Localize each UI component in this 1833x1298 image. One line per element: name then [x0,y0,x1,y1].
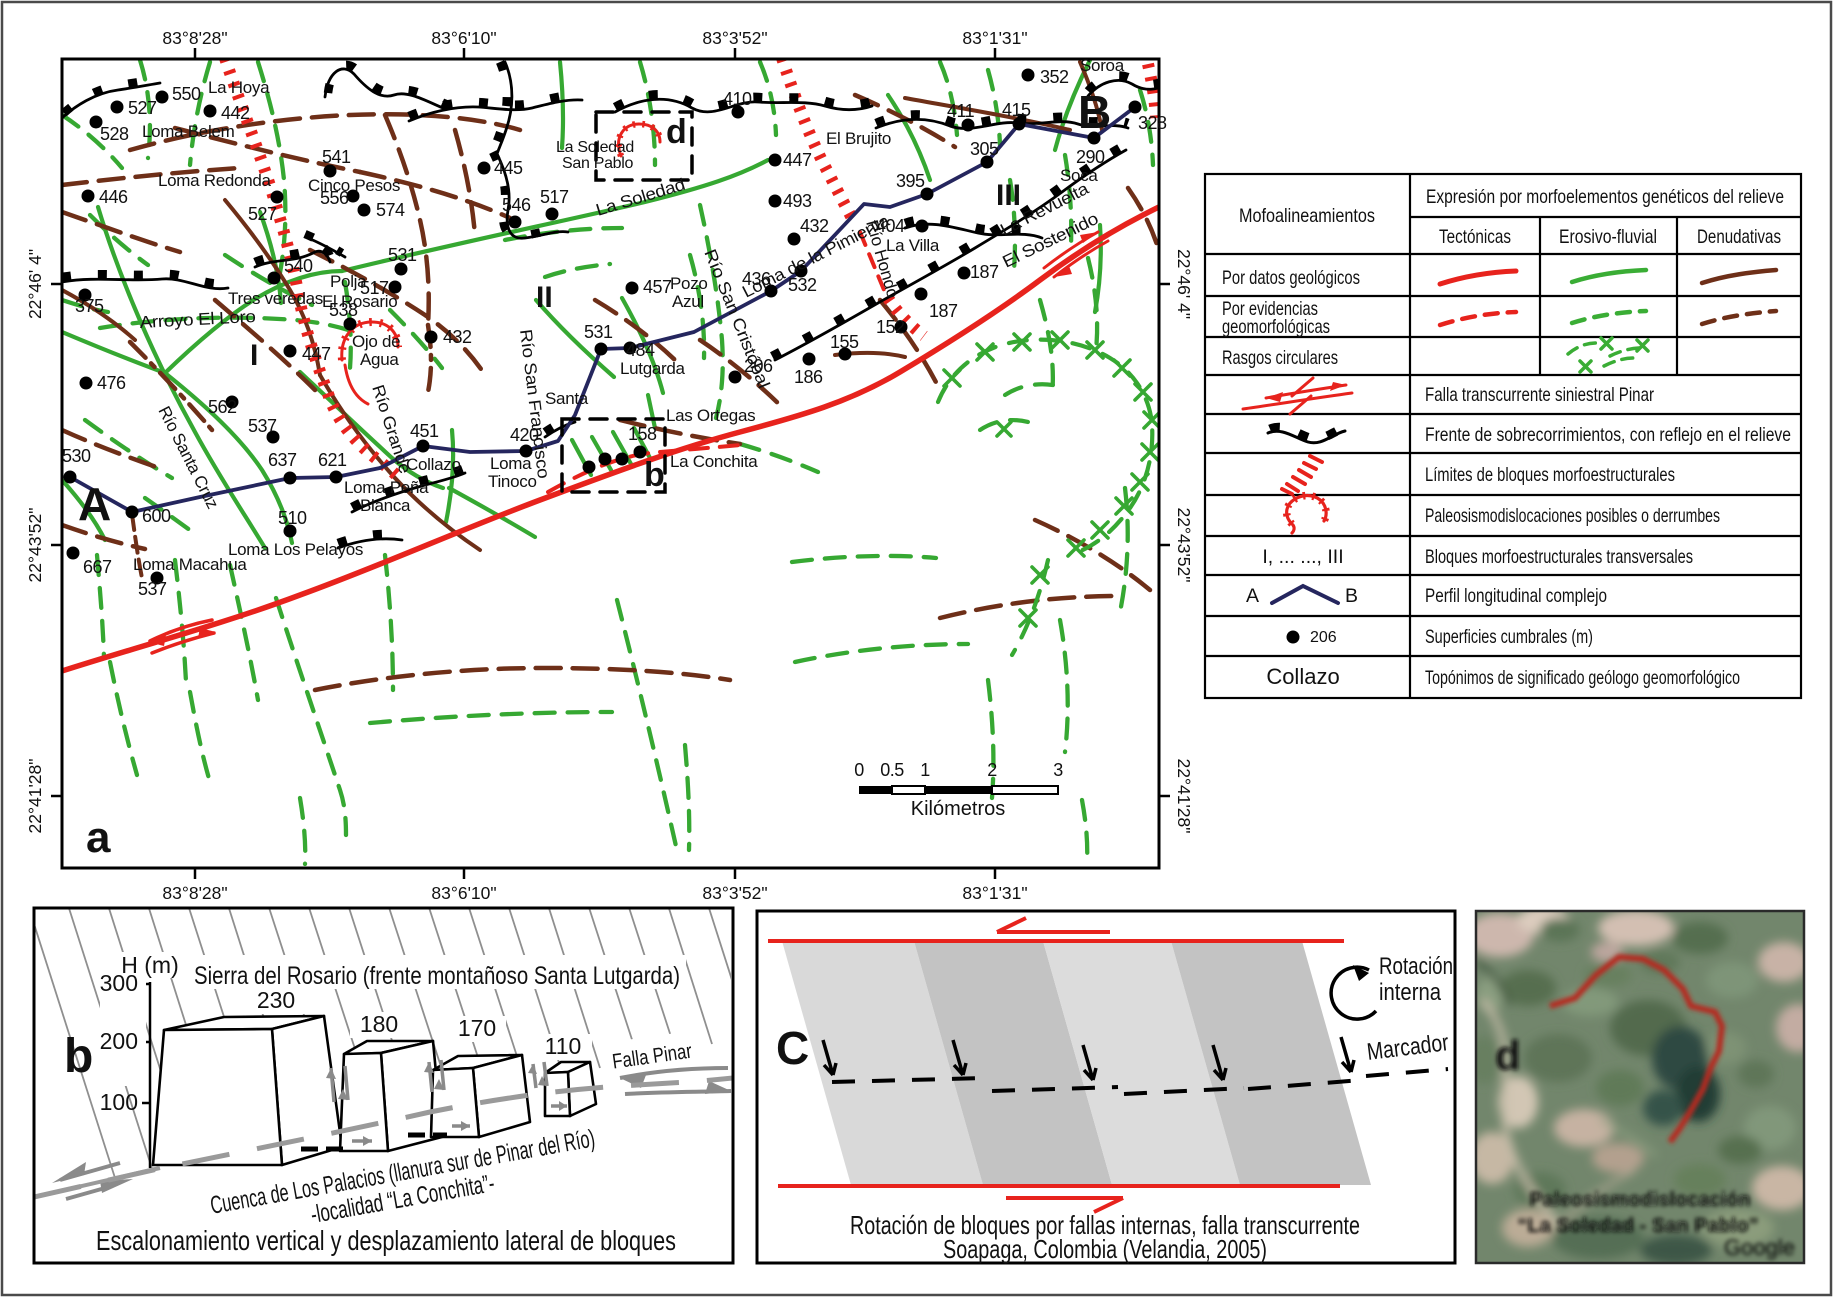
svg-text:Tres veredas: Tres veredas [228,289,323,308]
svg-text:83°3'52": 83°3'52" [702,28,767,48]
svg-text:d: d [1495,1032,1521,1079]
svg-text:El Brujito: El Brujito [826,129,891,148]
svg-text:415: 415 [1002,100,1031,120]
svg-text:Erosivo-fluvial: Erosivo-fluvial [1559,226,1657,248]
svg-text:411: 411 [947,101,975,121]
svg-text:Blanca: Blanca [360,496,411,515]
svg-text:155: 155 [830,332,859,352]
svg-text:531: 531 [388,245,417,265]
svg-text:541: 541 [322,147,351,167]
svg-text:447: 447 [783,150,812,170]
svg-text:527: 527 [128,98,157,118]
svg-text:Loma Redonda: Loma Redonda [158,171,271,190]
svg-text:A: A [1246,585,1259,607]
svg-text:447: 447 [302,344,331,364]
svg-text:Collazo: Collazo [406,455,461,474]
svg-text:Tectónicas: Tectónicas [1439,226,1511,248]
svg-text:83°8'28": 83°8'28" [162,883,227,903]
svg-text:II: II [536,281,553,314]
svg-text:Falla transcurrente siniestral: Falla transcurrente siniestral Pinar [1425,384,1654,406]
svg-text:180: 180 [360,1011,398,1037]
svg-text:Loma: Loma [490,454,532,473]
svg-text:Soapaga, Colombia (Velandia, 2: Soapaga, Colombia (Velandia, 2005) [943,1234,1267,1264]
svg-text:Perfil longitudinal complejo: Perfil longitudinal complejo [1425,585,1607,607]
svg-text:83°6'10": 83°6'10" [431,28,496,48]
svg-text:Loma Belem: Loma Belem [142,122,235,141]
svg-text:432: 432 [443,327,472,347]
svg-text:493: 493 [783,191,812,211]
svg-text:476: 476 [97,373,126,393]
svg-text:562: 562 [208,397,237,417]
svg-text:Loma Los Pelayos: Loma Los Pelayos [228,540,363,559]
svg-text:300: 300 [100,970,138,996]
svg-text:Agua: Agua [360,350,399,369]
svg-text:Arroyo El Loro: Arroyo El Loro [139,307,256,332]
svg-text:540: 540 [284,256,313,276]
svg-text:Google: Google [1724,1235,1795,1260]
svg-text:528: 528 [100,124,129,144]
svg-text:83°6'10": 83°6'10" [431,883,496,903]
svg-text:621: 621 [318,450,347,470]
svg-text:22°41'28": 22°41'28" [1174,759,1194,834]
svg-text:San Pablo: San Pablo [562,155,634,172]
svg-text:3: 3 [1053,760,1063,780]
svg-text:152: 152 [876,317,905,337]
svg-text:Lutgarda: Lutgarda [620,359,686,378]
svg-text:Cinco Pesos: Cinco Pesos [308,176,400,195]
svg-text:457: 457 [643,277,672,297]
svg-text:La Soledad: La Soledad [556,139,634,156]
svg-text:100: 100 [100,1089,138,1115]
svg-text:Kilómetros: Kilómetros [911,798,1005,820]
svg-text:446: 446 [99,187,128,207]
svg-text:600: 600 [142,506,171,526]
svg-text:451: 451 [410,421,439,441]
svg-text:432: 432 [800,216,829,236]
svg-text:Pozo: Pozo [670,274,708,293]
svg-text:206: 206 [1310,629,1337,646]
svg-text:0: 0 [854,760,864,780]
svg-text:A: A [78,478,111,530]
svg-text:395: 395 [896,171,925,191]
svg-text:527: 527 [248,204,277,224]
svg-text:b: b [64,1030,93,1083]
svg-text:170: 170 [458,1015,496,1041]
svg-text:Frente de sobrecorrimientos, c: Frente de sobrecorrimientos, con reflejo… [1425,424,1791,446]
svg-text:Bloques morfoestructurales tra: Bloques morfoestructurales transversales [1425,546,1693,568]
svg-text:187: 187 [929,301,958,321]
svg-text:I: I [250,339,258,372]
svg-text:interna: interna [1379,979,1442,1006]
svg-text:La Villa: La Villa [886,236,940,255]
svg-text:a: a [86,813,111,862]
svg-text:Loma Peña: Loma Peña [344,478,429,497]
svg-text:22°43'52": 22°43'52" [1174,508,1194,583]
svg-text:22°46' 4": 22°46' 4" [25,249,45,319]
svg-text:0.5: 0.5 [880,760,904,780]
svg-text:484: 484 [626,340,655,360]
svg-text:Azul: Azul [672,292,704,311]
svg-text:Sierra del Rosario (frente mon: Sierra del Rosario (frente montañoso San… [194,962,680,990]
svg-text:186: 186 [794,367,823,387]
svg-text:I, ... ..., III: I, ... ..., III [1262,546,1343,568]
svg-text:Ojo de: Ojo de [352,332,400,351]
svg-text:Mofoalineamientos: Mofoalineamientos [1239,205,1375,227]
svg-text:537: 537 [138,579,167,599]
svg-text:Soroa: Soroa [1080,56,1125,75]
svg-text:Superficies cumbrales (m): Superficies cumbrales (m) [1425,626,1593,648]
svg-text:Paleosismodislocación: Paleosismodislocación [1529,1189,1750,1211]
svg-text:517: 517 [540,187,569,207]
svg-text:Por datos geológicos: Por datos geológicos [1222,267,1360,289]
svg-text:“La Soledad - San Pablo”: “La Soledad - San Pablo” [1517,1215,1758,1237]
svg-text:83°8'28": 83°8'28" [162,28,227,48]
svg-text:III: III [996,179,1021,212]
svg-text:110: 110 [545,1033,582,1059]
svg-text:510: 510 [278,508,307,528]
svg-text:La Conchita: La Conchita [670,452,758,471]
svg-text:Límites de bloques morfoestruc: Límites de bloques morfoestructurales [1425,464,1675,486]
svg-text:230: 230 [257,987,295,1013]
svg-text:Las Ortegas: Las Ortegas [666,406,755,425]
svg-text:375: 375 [75,296,104,316]
svg-text:Tinoco: Tinoco [488,472,537,491]
svg-text:Rotación: Rotación [1379,953,1453,980]
svg-text:B: B [1078,86,1111,138]
svg-text:328: 328 [1138,113,1167,133]
svg-text:Marcador: Marcador [1365,1029,1450,1066]
svg-text:Denudativas: Denudativas [1697,226,1781,248]
svg-text:B: B [1345,585,1358,607]
svg-text:geomorfológicas: geomorfológicas [1222,316,1330,338]
svg-text:442: 442 [221,103,250,123]
svg-text:2: 2 [987,760,997,780]
svg-text:200: 200 [100,1028,138,1054]
svg-text:537: 537 [248,416,277,436]
svg-text:352: 352 [1040,67,1069,87]
svg-text:22°43'52": 22°43'52" [25,508,45,583]
svg-text:b: b [644,456,665,494]
svg-text:83°1'31": 83°1'31" [962,883,1027,903]
svg-text:1: 1 [920,760,930,780]
svg-text:Santa: Santa [545,389,589,408]
svg-text:410: 410 [723,89,752,109]
svg-text:83°1'31": 83°1'31" [962,28,1027,48]
svg-text:290: 290 [1076,147,1105,167]
svg-text:22°41'28": 22°41'28" [25,759,45,834]
svg-text:d: d [666,113,687,151]
svg-text:637: 637 [268,450,297,470]
svg-text:531: 531 [584,322,613,342]
svg-text:530: 530 [62,446,91,466]
svg-text:Paleosismodislocaciones posibl: Paleosismodislocaciones posibles o derru… [1425,505,1720,527]
svg-text:305: 305 [970,139,999,159]
svg-text:158: 158 [628,424,657,444]
svg-text:La Hoya: La Hoya [208,78,270,97]
svg-text:546: 546 [502,195,531,215]
svg-text:445: 445 [494,158,523,178]
svg-text:Rasgos circulares: Rasgos circulares [1222,347,1338,369]
svg-text:187: 187 [970,262,999,282]
svg-text:667: 667 [83,557,112,577]
svg-text:La Soledad: La Soledad [594,175,688,220]
svg-text:550: 550 [172,84,201,104]
svg-text:C: C [776,1022,809,1074]
svg-text:574: 574 [376,200,405,220]
svg-text:Polja: Polja [330,272,367,291]
svg-text:Escalonamiento vertical y desp: Escalonamiento vertical y desplazamiento… [96,1225,676,1256]
svg-text:Collazo: Collazo [1266,664,1339,689]
svg-text:83°3'52": 83°3'52" [702,883,767,903]
svg-text:El Rosario: El Rosario [322,292,397,311]
svg-text:22°46' 4": 22°46' 4" [1174,249,1194,319]
svg-text:Expresión por morfoelementos g: Expresión por morfoelementos genéticos d… [1426,186,1784,208]
svg-text:Topónimos de significado geólo: Topónimos de significado geólogo geomorf… [1425,667,1740,689]
